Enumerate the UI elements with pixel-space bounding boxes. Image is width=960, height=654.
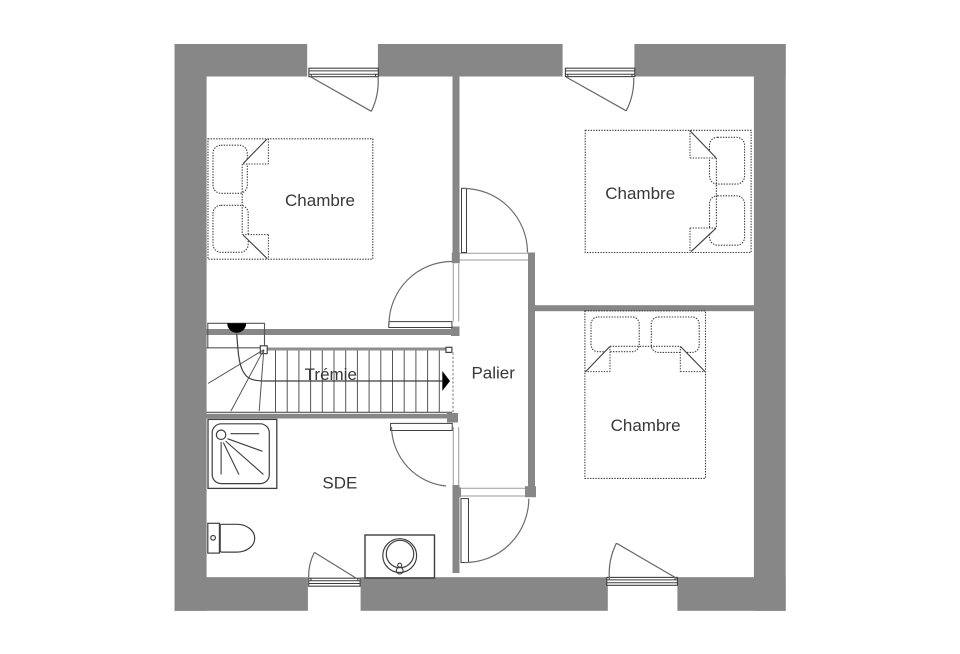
svg-text:Palier: Palier [471, 364, 515, 383]
svg-text:Trémie: Trémie [305, 365, 357, 384]
svg-text:Chambre: Chambre [285, 191, 355, 210]
svg-text:Chambre: Chambre [605, 184, 675, 203]
svg-text:Chambre: Chambre [611, 416, 681, 435]
svg-text:SDE: SDE [322, 474, 357, 493]
